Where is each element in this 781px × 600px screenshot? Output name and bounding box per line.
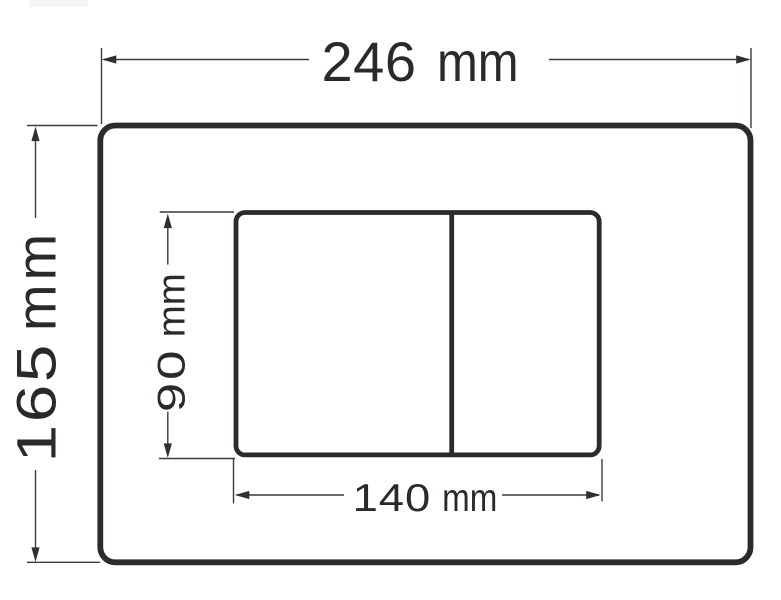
svg-text:mm: mm: [437, 31, 519, 94]
svg-text:mm: mm: [442, 477, 497, 520]
svg-text:140: 140: [353, 476, 432, 519]
svg-text:mm: mm: [5, 230, 68, 331]
svg-text:165: 165: [6, 342, 68, 462]
svg-text:mm: mm: [151, 273, 194, 337]
svg-text:90: 90: [150, 348, 193, 413]
svg-text:246: 246: [322, 30, 417, 93]
